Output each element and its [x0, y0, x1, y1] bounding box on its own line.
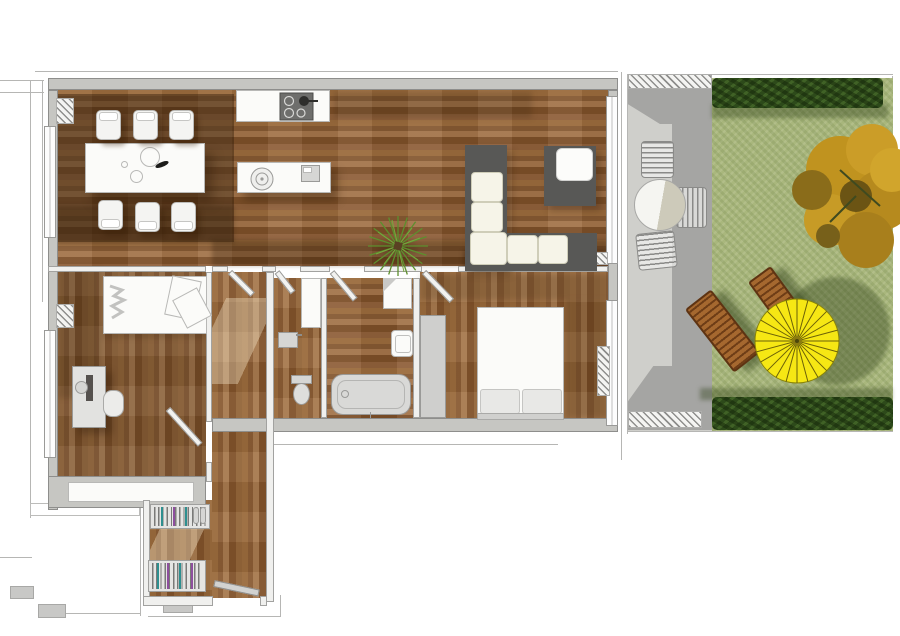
armchair-seat — [556, 148, 593, 181]
hedge-bottom — [712, 397, 893, 430]
bathtub-faucet-mark — [370, 412, 371, 418]
wall-hall-east — [266, 272, 274, 602]
wardrobe-bedroom-right — [420, 315, 446, 418]
wall-living-south-seg3 — [300, 266, 330, 272]
stair-step-2 — [38, 604, 66, 618]
radiator-living-west — [56, 98, 74, 124]
hanger-teal — [157, 563, 159, 589]
outline-left-a — [30, 80, 31, 518]
sofa-cushion-2 — [471, 202, 503, 232]
cooktop-icon — [279, 92, 319, 121]
hanger-teal — [185, 507, 187, 526]
shoe-left — [193, 507, 199, 524]
desk-chair — [103, 390, 124, 417]
wall-bath-bedroom — [413, 278, 420, 418]
built-in-wardrobe-bedroom-left — [68, 482, 194, 502]
stair-line-c — [65, 613, 141, 614]
parasol-icon — [753, 297, 841, 385]
stair-line-b — [140, 503, 141, 616]
potted-plant-icon — [366, 214, 430, 278]
dining-chair-2 — [133, 110, 158, 140]
dining-chair-5 — [135, 202, 160, 232]
window-west-living — [44, 126, 56, 238]
chair-backrest — [174, 221, 193, 230]
floor-plan-canvas — [0, 0, 900, 636]
stair-line-a — [0, 557, 32, 558]
window-east-living — [606, 96, 618, 264]
drain-grate — [628, 411, 702, 428]
sofa-cushion-3 — [507, 235, 538, 264]
wall-entry-south-b — [260, 596, 267, 606]
radiator-bedroom-right — [597, 346, 610, 396]
window-west-bedroom — [44, 330, 56, 458]
pillow-right — [522, 389, 562, 414]
wall-north — [48, 78, 618, 90]
hanger-purple — [173, 507, 175, 526]
living-top-shadow — [334, 92, 532, 118]
pergola-hatch — [628, 74, 712, 89]
bathtub-drain — [341, 390, 349, 398]
hanger-teal — [161, 507, 163, 526]
dining-chair-1 — [96, 110, 121, 140]
wall-wc-bath — [321, 278, 327, 418]
plate-tiny — [121, 161, 128, 168]
autumn-tree-icon — [772, 112, 900, 280]
chair-backrest — [138, 221, 157, 230]
entry-light-patch — [150, 524, 212, 564]
stair-line-e — [280, 595, 281, 617]
wc-basin-faucet — [296, 334, 302, 336]
patio-shade-side — [672, 96, 712, 430]
sofa-cushion-4 — [538, 235, 568, 264]
patio-chair-bottom — [635, 230, 678, 271]
stair-line-d — [148, 616, 280, 617]
wall-bedroom-left-top — [48, 266, 206, 272]
patio-chair-top — [641, 141, 674, 178]
dining-chair-4 — [98, 200, 123, 230]
hanger-purple — [191, 563, 193, 589]
chair-backrest — [136, 112, 155, 121]
bed-headboard — [477, 413, 564, 420]
outline-top — [35, 71, 618, 72]
hanger-purple — [167, 563, 169, 589]
outline-gap-a — [621, 72, 622, 460]
coat-rack-2 — [148, 560, 206, 592]
chair-backrest — [99, 112, 118, 121]
dining-chair-6 — [171, 202, 196, 232]
radiator-bedroom-left — [56, 304, 74, 328]
chair-backrest — [172, 112, 191, 121]
outline-terrace-bottom — [627, 431, 893, 432]
chair-backrest — [101, 219, 120, 228]
outline-below-flat — [270, 444, 558, 445]
dining-chair-3 — [169, 110, 194, 140]
wall-living-south-seg1 — [212, 266, 228, 272]
sofa-cushion-1 — [471, 172, 503, 202]
appliance-lid — [303, 167, 312, 173]
island-sink-icon — [248, 165, 276, 193]
bistro-table — [634, 179, 686, 231]
wc-tall-cabinet — [301, 278, 321, 328]
bed1-wrinkles — [106, 282, 136, 322]
wall-bedroom-left-east-stub — [206, 462, 212, 482]
stair-step-1 — [10, 586, 34, 599]
outline-topleft-b — [0, 92, 44, 93]
hangers-row — [152, 563, 202, 589]
hedge-top — [712, 78, 883, 108]
outline-topleft-a — [0, 80, 44, 81]
sofa-cushion-corner — [470, 232, 507, 265]
wall-entry-south-a — [143, 596, 213, 606]
hanger-teal — [179, 563, 181, 589]
pillow-left — [480, 389, 520, 414]
toilet-bowl — [293, 383, 310, 405]
plate-small — [130, 170, 143, 183]
desk-disc — [75, 381, 88, 394]
wc-hand-basin — [278, 332, 298, 348]
washbasin-bowl — [395, 335, 411, 353]
hallway-light-patch — [212, 298, 266, 384]
shoe-right — [200, 507, 206, 524]
outline-left-b — [42, 80, 43, 302]
